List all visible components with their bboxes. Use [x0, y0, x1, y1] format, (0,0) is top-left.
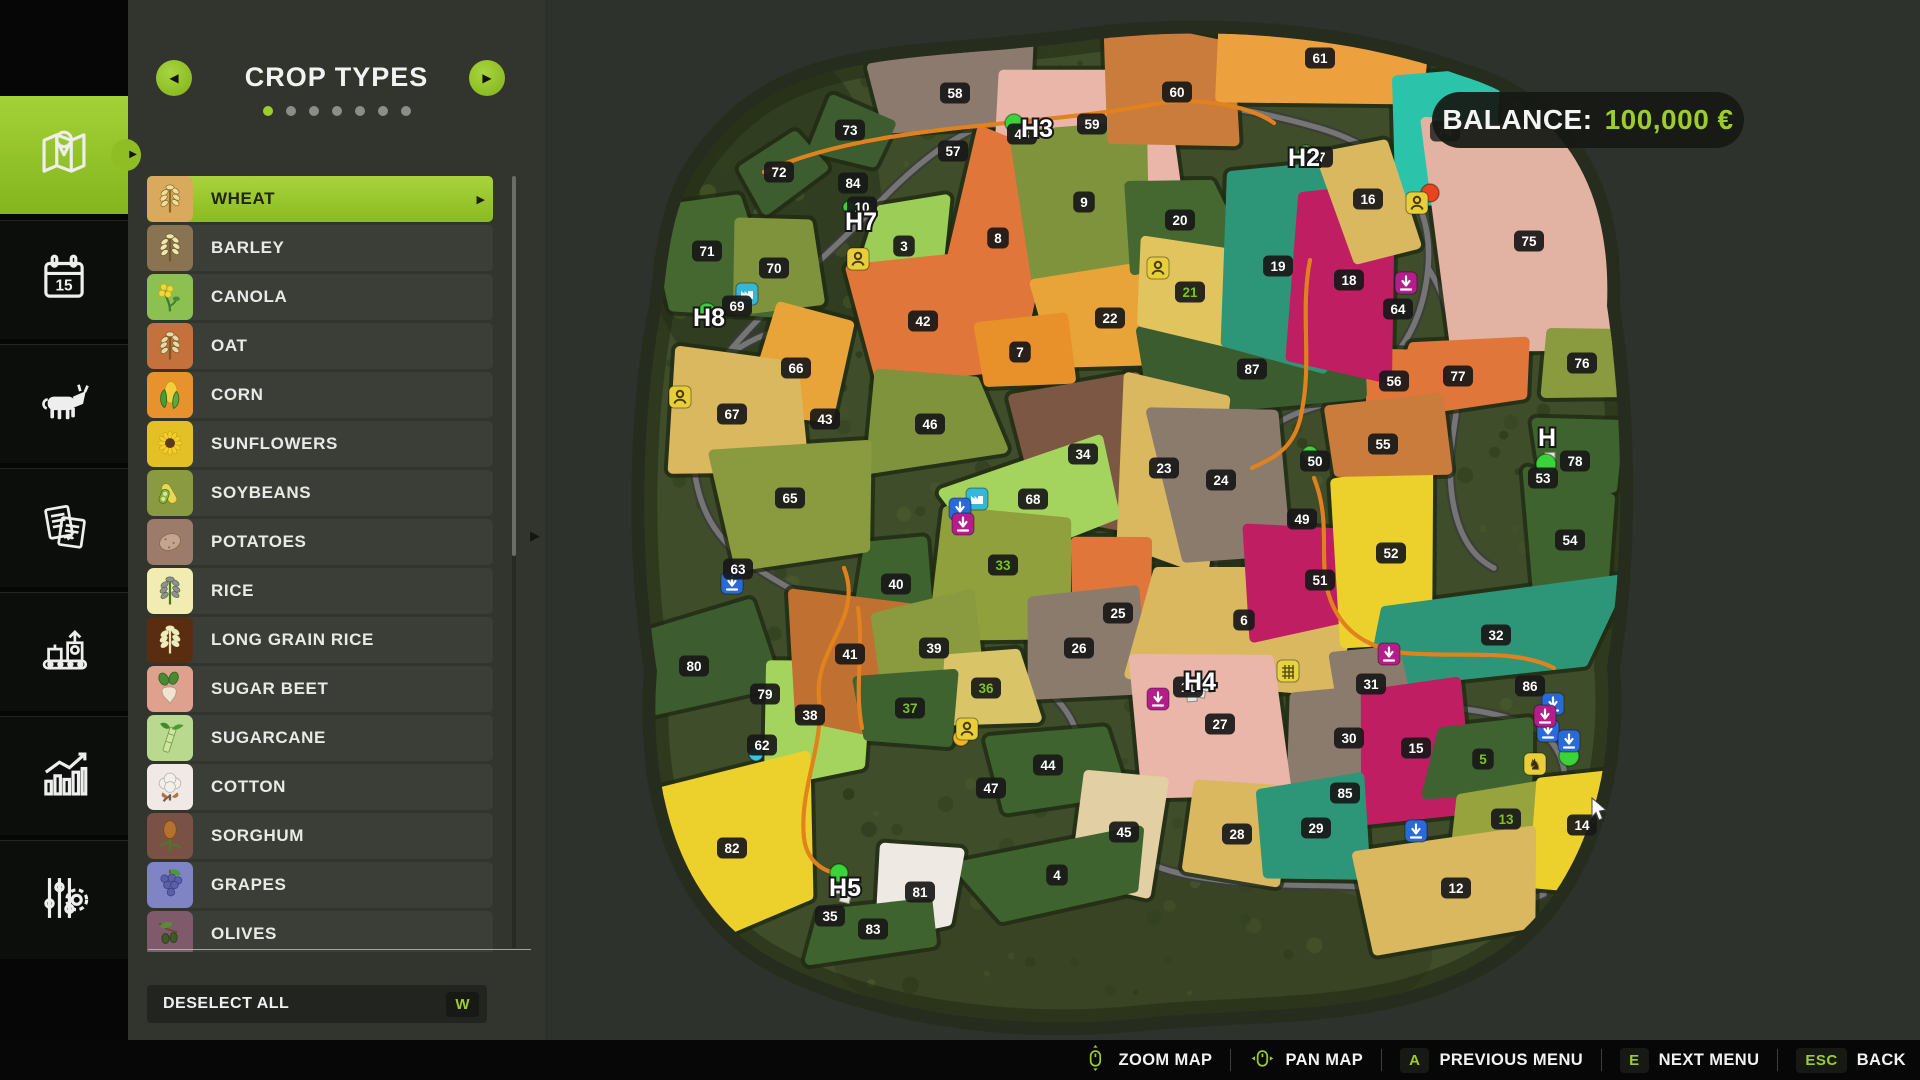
map-icon [35, 124, 93, 187]
svg-text:28: 28 [1229, 827, 1245, 842]
pod-crop-icon [147, 470, 193, 516]
statistics-icon [35, 745, 93, 808]
svg-text:43: 43 [817, 412, 833, 427]
field-badge-31[interactable]: 31 [1356, 674, 1386, 695]
hint-label: ZOOM MAP [1118, 1051, 1212, 1070]
field-badge-5[interactable]: 5 [1472, 749, 1494, 770]
svg-text:20: 20 [1172, 213, 1187, 228]
hint-label: BACK [1857, 1051, 1906, 1070]
svg-text:50: 50 [1307, 454, 1322, 469]
deselect-key-badge: W [446, 992, 479, 1017]
field-badge-39[interactable]: 39 [919, 638, 949, 659]
field-badge-82[interactable]: 82 [717, 838, 747, 859]
svg-text:76: 76 [1574, 356, 1590, 371]
svg-text:34: 34 [1075, 447, 1091, 462]
field-badge-50[interactable]: 50 [1300, 451, 1330, 472]
field-badge-7[interactable]: 7 [1009, 342, 1031, 363]
svg-text:71: 71 [699, 244, 715, 259]
map-marker-bluedown[interactable] [1405, 820, 1427, 842]
map-marker-person[interactable] [847, 248, 869, 270]
svg-text:13: 13 [1498, 812, 1514, 827]
canola-crop-icon [147, 274, 193, 320]
field-badge-51[interactable]: 51 [1305, 570, 1335, 591]
svg-text:60: 60 [1169, 85, 1184, 100]
hint-divider [1601, 1049, 1602, 1071]
svg-text:52: 52 [1383, 546, 1398, 561]
grapes-crop-icon [147, 862, 193, 908]
map-marker-grid[interactable] [1277, 660, 1299, 682]
sidebar-item-map[interactable]: ▶ [0, 96, 128, 214]
svg-text:30: 30 [1341, 731, 1356, 746]
svg-text:40: 40 [888, 577, 903, 592]
sidebar-item-contracts[interactable] [0, 468, 128, 587]
field-badge-69[interactable]: 69 [722, 296, 752, 317]
field-badge-61[interactable]: 61 [1305, 48, 1335, 69]
crop-row-sunflowers[interactable]: SUNFLOWERS [147, 421, 493, 467]
hint-label: PREVIOUS MENU [1439, 1051, 1583, 1070]
panel-divider [148, 949, 531, 950]
field-badge-71[interactable]: 71 [692, 241, 722, 262]
mouse-horizontal-icon [1249, 1045, 1275, 1076]
barley-crop-icon [147, 225, 193, 271]
documents-icon [35, 497, 93, 560]
svg-text:41: 41 [842, 647, 858, 662]
field-badge-55[interactable]: 55 [1368, 434, 1398, 455]
crop-row-soybeans[interactable]: SOYBEANS [147, 470, 493, 516]
mouse-vertical-icon [1082, 1045, 1108, 1076]
crop-row-wheat[interactable]: WHEAT▶ [147, 176, 493, 222]
field-badge-32[interactable]: 32 [1481, 625, 1511, 646]
svg-text:9: 9 [1080, 195, 1088, 210]
crop-label: SORGHUM [211, 826, 304, 846]
longrice-crop-icon [147, 617, 193, 663]
crop-label: BARLEY [211, 238, 285, 258]
cotton-crop-icon [147, 764, 193, 810]
field-badge-34[interactable]: 34 [1068, 444, 1098, 465]
pagination-dot-3[interactable] [309, 106, 319, 116]
svg-text:27: 27 [1212, 717, 1227, 732]
crop-label: OLIVES [211, 924, 277, 944]
corn-crop-icon [147, 372, 193, 418]
deselect-all-button[interactable]: DESELECT ALL W [147, 985, 487, 1023]
crop-row-sugarcane[interactable]: SUGARCANE [147, 715, 493, 761]
field-badge-75[interactable]: 75 [1514, 231, 1544, 252]
field-badge-66[interactable]: 66 [781, 358, 811, 379]
field-badge-29[interactable]: 29 [1301, 818, 1331, 839]
crop-label: OAT [211, 336, 247, 356]
selected-crop-arrow: ▶ [477, 193, 485, 206]
svg-text:77: 77 [1450, 369, 1465, 384]
field-badge-23[interactable]: 23 [1149, 458, 1179, 479]
svg-text:85: 85 [1337, 786, 1353, 801]
crop-types-panel: ◀ CROP TYPES ▶ WHEAT▶BARLEYCANOLAOATCORN… [128, 0, 545, 1080]
svg-text:4: 4 [1053, 868, 1061, 883]
field-badge-30[interactable]: 30 [1334, 728, 1364, 749]
field-badge-60[interactable]: 60 [1162, 82, 1192, 103]
svg-text:75: 75 [1521, 234, 1537, 249]
pagination-dot-6[interactable] [378, 106, 388, 116]
svg-text:79: 79 [757, 687, 772, 702]
cow-icon [35, 373, 93, 436]
map-marker-person[interactable] [956, 718, 978, 740]
svg-text:32: 32 [1488, 628, 1503, 643]
field-badge-24[interactable]: 24 [1206, 470, 1236, 491]
field-badge-46[interactable]: 46 [915, 414, 945, 435]
olives-crop-icon [147, 911, 193, 952]
hint-divider [1230, 1049, 1231, 1071]
key-badge-a: A [1400, 1048, 1429, 1073]
pagination-dot-5[interactable] [355, 106, 365, 116]
svg-text:8: 8 [994, 231, 1002, 246]
crop-row-oat[interactable]: OAT [147, 323, 493, 369]
svg-text:45: 45 [1116, 825, 1132, 840]
field-badge-52[interactable]: 52 [1376, 543, 1406, 564]
svg-text:31: 31 [1363, 677, 1379, 692]
hint-divider [1777, 1049, 1778, 1071]
crop-label: POTATOES [211, 532, 306, 552]
rice-crop-icon [147, 568, 193, 614]
map-marker-bluedown[interactable] [1558, 730, 1580, 752]
svg-text:54: 54 [1562, 533, 1578, 548]
field-badge-84[interactable]: 84 [838, 173, 868, 194]
field-badge-49[interactable]: 49 [1287, 509, 1317, 530]
hint-zoom-map: ZOOM MAP [1082, 1045, 1212, 1076]
field-badge-45[interactable]: 45 [1109, 822, 1139, 843]
field-badge-73[interactable]: 73 [835, 120, 865, 141]
map-marker-magdown[interactable] [1147, 688, 1169, 710]
field-badge-38[interactable]: 38 [795, 705, 825, 726]
svg-text:22: 22 [1102, 311, 1117, 326]
svg-text:26: 26 [1071, 641, 1087, 656]
svg-text:59: 59 [1084, 117, 1099, 132]
crop-label: RICE [211, 581, 254, 601]
crop-row-sorghum[interactable]: SORGHUM [147, 813, 493, 859]
svg-text:23: 23 [1156, 461, 1172, 476]
field-badge-62[interactable]: 62 [747, 735, 777, 756]
field-badge-85[interactable]: 85 [1330, 783, 1360, 804]
field-badge-8[interactable]: 8 [987, 228, 1009, 249]
svg-text:63: 63 [730, 562, 746, 577]
field-badge-22[interactable]: 22 [1095, 308, 1125, 329]
crop-row-potatoes[interactable]: POTATOES [147, 519, 493, 565]
svg-text:15: 15 [55, 277, 73, 294]
crop-label: LONG GRAIN RICE [211, 630, 374, 650]
hotspot-label-h[interactable]: H [1538, 424, 1556, 452]
field-badge-63[interactable]: 63 [723, 559, 753, 580]
field-badge-35[interactable]: 35 [815, 906, 845, 927]
svg-text:49: 49 [1294, 512, 1309, 527]
svg-text:21: 21 [1182, 285, 1198, 300]
svg-text:6: 6 [1240, 613, 1248, 628]
crop-row-barley[interactable]: BARLEY [147, 225, 493, 271]
deselect-all-label: DESELECT ALL [163, 995, 446, 1013]
field-badge-28[interactable]: 28 [1222, 824, 1252, 845]
field-badge-4[interactable]: 4 [1046, 865, 1068, 886]
field-badge-27[interactable]: 27 [1205, 714, 1235, 735]
svg-text:12: 12 [1448, 881, 1463, 896]
map-canvas: ♞585973727184105734289706966672276061747… [612, 6, 1647, 1035]
field-badge-76[interactable]: 76 [1567, 353, 1597, 374]
svg-text:25: 25 [1110, 606, 1126, 621]
field-badge-65[interactable]: 65 [775, 488, 805, 509]
field-badge-79[interactable]: 79 [750, 684, 780, 705]
crop-label: SOYBEANS [211, 483, 311, 503]
field-badge-70[interactable]: 70 [759, 258, 789, 279]
field-badge-6[interactable]: 6 [1233, 610, 1255, 631]
svg-text:16: 16 [1360, 192, 1376, 207]
hotspot-label-h5[interactable]: H5 [829, 874, 861, 902]
pagination-dot-4[interactable] [332, 106, 342, 116]
crop-label: WHEAT [211, 189, 275, 209]
hint-label: NEXT MENU [1659, 1051, 1760, 1070]
pagination-dot-7[interactable] [401, 106, 411, 116]
hint-pan-map: PAN MAP [1249, 1045, 1363, 1076]
sidebar-rail: ▶15 [0, 0, 128, 1080]
balance-value: 100,000 € [1605, 104, 1734, 136]
selected-arrow-icon: ▶ [129, 149, 137, 160]
svg-text:87: 87 [1244, 362, 1259, 377]
field-badge-21[interactable]: 21 [1175, 282, 1205, 303]
svg-text:14: 14 [1574, 818, 1590, 833]
crop-row-olives[interactable]: OLIVES [147, 911, 493, 952]
crop-row-rice[interactable]: RICE [147, 568, 493, 614]
field-badge-47[interactable]: 47 [976, 778, 1006, 799]
sidebar-item-statistics[interactable] [0, 716, 128, 835]
map-marker-horse[interactable]: ♞ [1524, 753, 1546, 775]
field-badge-42[interactable]: 42 [908, 311, 938, 332]
hotspot-label-h2[interactable]: H2 [1288, 144, 1320, 172]
field-badge-67[interactable]: 67 [717, 404, 747, 425]
crop-label: SUGARCANE [211, 728, 326, 748]
field-badge-68[interactable]: 68 [1018, 489, 1048, 510]
map-marker-magdown[interactable] [1534, 705, 1556, 727]
map-marker-person[interactable] [669, 386, 691, 408]
svg-text:5: 5 [1479, 752, 1487, 767]
field-badge-44[interactable]: 44 [1033, 755, 1063, 776]
field-badge-43[interactable]: 43 [810, 409, 840, 430]
svg-text:86: 86 [1522, 679, 1538, 694]
svg-text:38: 38 [802, 708, 818, 723]
settings-icon [35, 869, 93, 932]
production-icon [35, 621, 93, 684]
potato-crop-icon [147, 519, 193, 565]
field-badge-14[interactable]: 14 [1567, 815, 1597, 836]
svg-text:55: 55 [1375, 437, 1391, 452]
svg-text:82: 82 [724, 841, 739, 856]
svg-text:35: 35 [822, 909, 838, 924]
crop-label: CANOLA [211, 287, 287, 307]
pagination-dots [128, 106, 545, 116]
svg-text:36: 36 [978, 681, 994, 696]
field-badge-15[interactable]: 15 [1401, 738, 1431, 759]
svg-text:♞: ♞ [1528, 756, 1541, 774]
field-badge-57[interactable]: 57 [938, 141, 968, 162]
field-badge-58[interactable]: 58 [940, 83, 970, 104]
pagination-dot-1[interactable] [263, 106, 273, 116]
field-badge-56[interactable]: 56 [1379, 371, 1409, 392]
hint-label: PAN MAP [1285, 1051, 1363, 1070]
field-badge-54[interactable]: 54 [1555, 530, 1585, 551]
key-badge-esc: ESC [1796, 1048, 1846, 1073]
svg-text:65: 65 [782, 491, 798, 506]
map-marker-person[interactable] [1406, 192, 1428, 214]
crop-list: WHEAT▶BARLEYCANOLAOATCORNSUNFLOWERSSOYBE… [147, 176, 493, 952]
svg-text:72: 72 [771, 165, 786, 180]
crop-row-sugar-beet[interactable]: SUGAR BEET [147, 666, 493, 712]
pagination-dot-2[interactable] [286, 106, 296, 116]
sidebar-item-production[interactable] [0, 592, 128, 711]
sorghum-crop-icon [147, 813, 193, 859]
crop-row-grapes[interactable]: GRAPES [147, 862, 493, 908]
crop-row-long-grain-rice[interactable]: LONG GRAIN RICE [147, 617, 493, 663]
crop-list-scrollbar[interactable] [512, 176, 516, 948]
crop-label: SUGAR BEET [211, 679, 328, 699]
next-page-button[interactable]: ▶ [469, 60, 505, 96]
crop-row-corn[interactable]: CORN [147, 372, 493, 418]
field-badge-19[interactable]: 19 [1263, 256, 1293, 277]
map-marker-person[interactable] [1147, 257, 1169, 279]
crop-panel-header: ◀ CROP TYPES ▶ [128, 48, 545, 128]
svg-text:57: 57 [945, 144, 960, 159]
beet-crop-icon [147, 666, 193, 712]
svg-text:39: 39 [926, 641, 941, 656]
calendar-icon: 15 [35, 249, 93, 312]
panel-expander-arrow[interactable]: ▶ [530, 528, 540, 544]
svg-text:81: 81 [912, 885, 928, 900]
bottom-hint-bar: ZOOM MAPPAN MAPAPREVIOUS MENUENEXT MENUE… [0, 1040, 1920, 1080]
field-badge-87[interactable]: 87 [1237, 359, 1267, 380]
svg-text:44: 44 [1040, 758, 1056, 773]
svg-text:80: 80 [686, 659, 701, 674]
svg-text:68: 68 [1025, 492, 1041, 507]
crop-row-cotton[interactable]: COTTON [147, 764, 493, 810]
field-badge-64[interactable]: 64 [1383, 299, 1413, 320]
svg-text:51: 51 [1312, 573, 1328, 588]
field-badge-18[interactable]: 18 [1334, 270, 1364, 291]
svg-text:84: 84 [845, 176, 861, 191]
svg-text:3: 3 [900, 239, 908, 254]
hotspot-label-h7[interactable]: H7 [845, 208, 877, 236]
svg-text:37: 37 [902, 701, 917, 716]
field-badge-77[interactable]: 77 [1443, 366, 1473, 387]
field-badge-40[interactable]: 40 [881, 574, 911, 595]
crop-label: SUNFLOWERS [211, 434, 338, 454]
svg-text:29: 29 [1308, 821, 1323, 836]
field-badge-12[interactable]: 12 [1441, 878, 1471, 899]
sidebar-item-animals[interactable] [0, 344, 128, 463]
svg-text:73: 73 [842, 123, 858, 138]
crop-label: GRAPES [211, 875, 286, 895]
sidebar-item-settings[interactable] [0, 840, 128, 959]
svg-text:33: 33 [995, 558, 1011, 573]
svg-text:53: 53 [1535, 471, 1551, 486]
svg-text:58: 58 [947, 86, 963, 101]
crop-label: CORN [211, 385, 263, 405]
svg-text:64: 64 [1390, 302, 1406, 317]
map-marker-magdown[interactable] [952, 513, 974, 535]
svg-text:15: 15 [1408, 741, 1424, 756]
field-badge-41[interactable]: 41 [835, 644, 865, 665]
field-badge-3[interactable]: 3 [893, 236, 915, 257]
balance-label: BALANCE: [1442, 104, 1592, 136]
crop-row-canola[interactable]: CANOLA [147, 274, 493, 320]
field-badge-36[interactable]: 36 [971, 678, 1001, 699]
svg-text:46: 46 [922, 417, 938, 432]
svg-text:66: 66 [788, 361, 804, 376]
key-badge-e: E [1620, 1048, 1649, 1073]
hint-next-menu: ENEXT MENU [1620, 1048, 1759, 1073]
hint-back: ESCBACK [1796, 1048, 1906, 1073]
field-badge-37[interactable]: 37 [895, 698, 925, 719]
svg-text:67: 67 [724, 407, 739, 422]
field-badge-78[interactable]: 78 [1560, 451, 1590, 472]
svg-text:19: 19 [1270, 259, 1285, 274]
map-marker-magdown[interactable] [1395, 272, 1417, 294]
cane-crop-icon [147, 715, 193, 761]
field-badge-80[interactable]: 80 [679, 656, 709, 677]
field-badge-20[interactable]: 20 [1165, 210, 1195, 231]
field-badge-26[interactable]: 26 [1064, 638, 1094, 659]
svg-text:47: 47 [983, 781, 998, 796]
hint-previous-menu: APREVIOUS MENU [1400, 1048, 1583, 1073]
field-badge-33[interactable]: 33 [988, 555, 1018, 576]
hint-divider [1381, 1049, 1382, 1071]
field-badge-16[interactable]: 16 [1353, 189, 1383, 210]
field-badge-9[interactable]: 9 [1073, 192, 1095, 213]
svg-text:61: 61 [1312, 51, 1328, 66]
field-badge-25[interactable]: 25 [1103, 603, 1133, 624]
svg-text:42: 42 [915, 314, 930, 329]
balance-panel: BALANCE: 100,000 € [1432, 92, 1744, 148]
crop-label: COTTON [211, 777, 286, 797]
svg-text:62: 62 [754, 738, 769, 753]
hotspot-label-h4[interactable]: H4 [1184, 668, 1216, 696]
svg-text:24: 24 [1213, 473, 1229, 488]
field-badge-81[interactable]: 81 [905, 882, 935, 903]
svg-text:7: 7 [1016, 345, 1024, 360]
hotspot-label-h8[interactable]: H8 [693, 304, 725, 332]
farm-map[interactable]: ♞585973727184105734289706966672276061747… [612, 6, 1647, 1035]
svg-text:70: 70 [766, 261, 781, 276]
svg-text:69: 69 [729, 299, 744, 314]
svg-text:18: 18 [1341, 273, 1357, 288]
field-badge-13[interactable]: 13 [1491, 809, 1521, 830]
sunflower-crop-icon [147, 421, 193, 467]
field-badge-53[interactable]: 53 [1528, 468, 1558, 489]
svg-text:83: 83 [865, 922, 881, 937]
oat-crop-icon [147, 323, 193, 369]
svg-text:78: 78 [1567, 454, 1583, 469]
field-badge-72[interactable]: 72 [764, 162, 794, 183]
hotspot-label-h3[interactable]: H3 [1021, 115, 1053, 143]
map-marker-magdown[interactable] [1378, 643, 1400, 665]
field-badge-83[interactable]: 83 [858, 919, 888, 940]
sidebar-item-calendar[interactable]: 15 [0, 220, 128, 339]
field-badge-59[interactable]: 59 [1077, 114, 1107, 135]
wheat-crop-icon [147, 176, 193, 222]
field-badge-86[interactable]: 86 [1515, 676, 1545, 697]
svg-text:56: 56 [1386, 374, 1402, 389]
